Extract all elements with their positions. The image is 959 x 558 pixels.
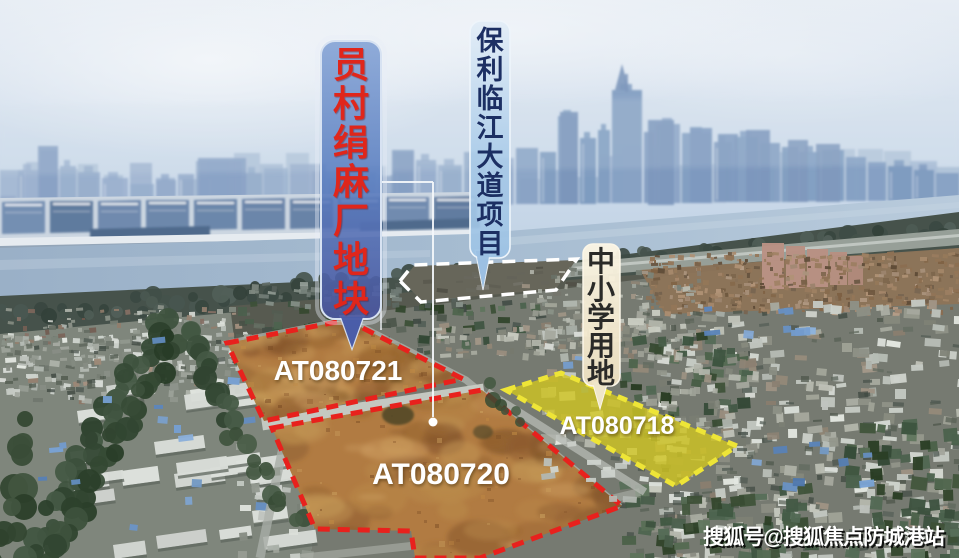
svg-text:道: 道 — [477, 170, 504, 201]
svg-text:项: 项 — [477, 200, 504, 230]
svg-text:江: 江 — [477, 113, 504, 143]
svg-text:AT080718: AT080718 — [560, 412, 675, 440]
svg-text:搜狐号@搜狐焦点防城港站: 搜狐号@搜狐焦点防城港站 — [703, 525, 945, 549]
svg-text:目: 目 — [477, 229, 504, 259]
svg-text:用: 用 — [587, 330, 615, 361]
svg-text:地: 地 — [587, 358, 615, 389]
svg-text:临: 临 — [477, 83, 504, 114]
svg-text:小: 小 — [587, 274, 615, 305]
svg-text:村: 村 — [333, 83, 369, 124]
svg-text:中: 中 — [587, 246, 615, 277]
svg-text:大: 大 — [477, 142, 504, 172]
svg-text:地: 地 — [333, 239, 369, 280]
svg-text:保: 保 — [476, 26, 505, 56]
svg-text:AT080720: AT080720 — [372, 458, 510, 491]
svg-text:员: 员 — [333, 44, 369, 85]
svg-text:AT080721: AT080721 — [274, 355, 403, 386]
svg-text:厂: 厂 — [333, 200, 369, 241]
svg-text:利: 利 — [477, 55, 504, 85]
svg-text:块: 块 — [333, 278, 369, 319]
svg-text:学: 学 — [587, 301, 615, 333]
svg-text:绢: 绢 — [333, 122, 369, 163]
svg-text:麻: 麻 — [333, 161, 369, 202]
